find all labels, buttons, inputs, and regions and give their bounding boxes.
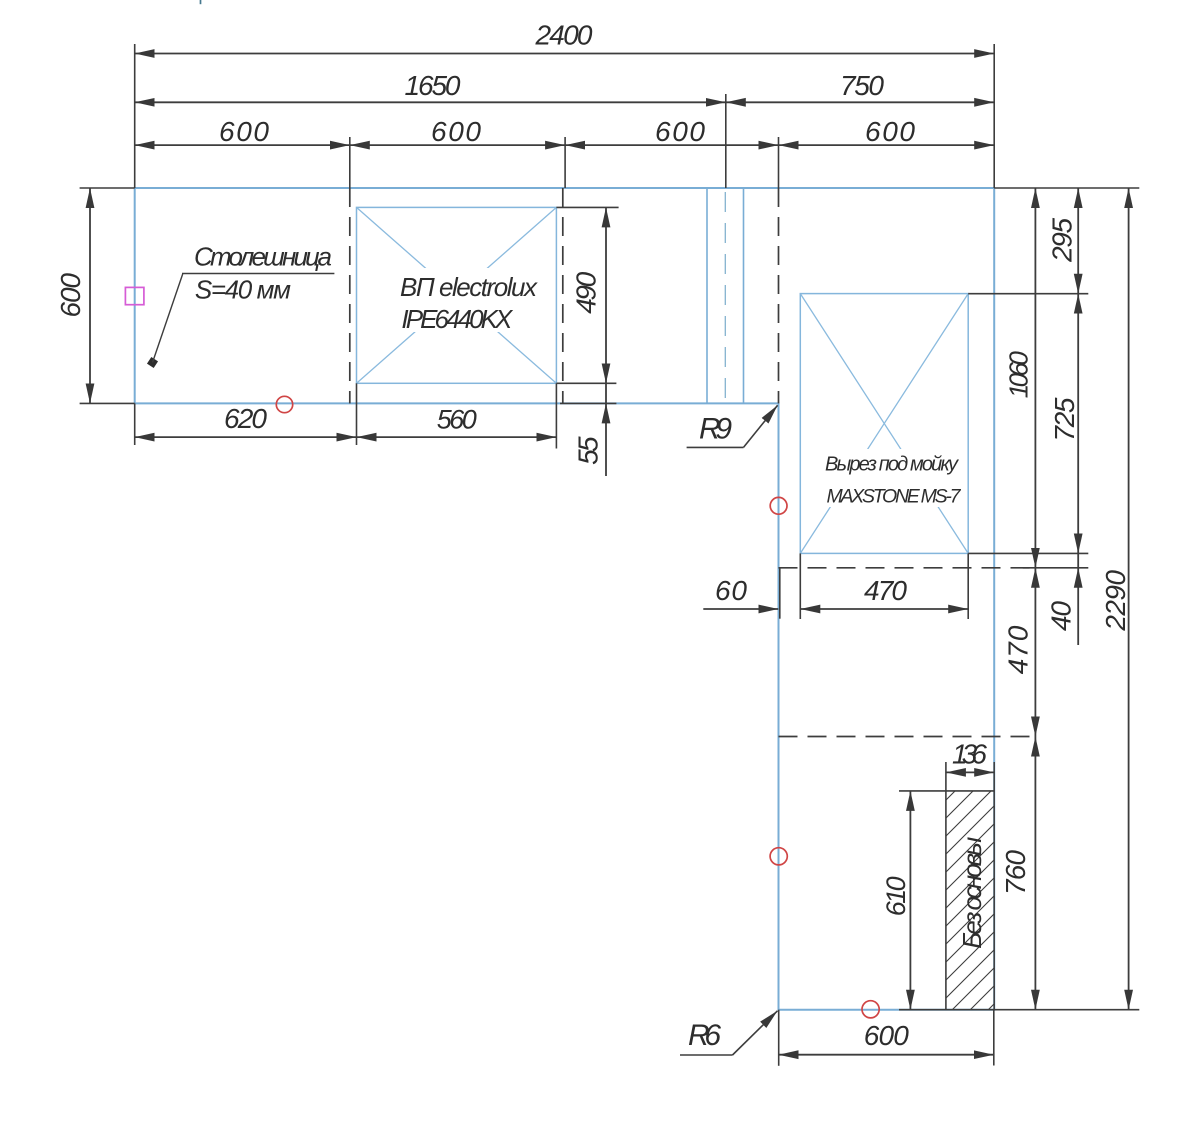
svg-text:MAXSTONE MS-7: MAXSTONE MS-7: [827, 485, 962, 507]
svg-text:55: 55: [572, 436, 603, 465]
svg-text:2400: 2400: [535, 20, 593, 51]
svg-text:725: 725: [1049, 397, 1080, 441]
svg-text:R6: R6: [688, 1019, 721, 1052]
svg-text:40: 40: [1046, 601, 1077, 631]
svg-text:470: 470: [864, 575, 907, 606]
svg-text:610: 610: [881, 876, 911, 916]
svg-text:ВП electrolux: ВП electrolux: [400, 272, 538, 302]
svg-text:620: 620: [224, 403, 267, 434]
svg-text:60: 60: [715, 575, 747, 606]
svg-text:IPE6440KX: IPE6440KX: [401, 304, 514, 334]
svg-text:R9: R9: [699, 413, 732, 446]
svg-text:600: 600: [655, 116, 705, 147]
svg-text:S=40 мм: S=40 мм: [195, 275, 291, 305]
svg-text:Столешница: Столешница: [194, 242, 332, 272]
svg-text:600: 600: [219, 116, 269, 147]
svg-text:600: 600: [865, 116, 915, 147]
svg-text:Без основы: Без основы: [957, 837, 987, 949]
svg-text:600: 600: [55, 273, 86, 318]
svg-text:2290: 2290: [1100, 570, 1131, 632]
svg-text:490: 490: [570, 271, 601, 313]
svg-text:600: 600: [431, 116, 481, 147]
svg-text:295: 295: [1046, 217, 1077, 262]
svg-text:1650: 1650: [405, 70, 461, 101]
svg-text:600: 600: [864, 1020, 909, 1051]
svg-text:136: 136: [952, 739, 987, 770]
svg-text:470: 470: [1003, 625, 1034, 674]
svg-text:1060: 1060: [1004, 351, 1034, 399]
svg-text:Вырез под мойку: Вырез под мойку: [825, 454, 959, 476]
svg-text:750: 750: [840, 70, 884, 101]
svg-text:560: 560: [437, 404, 477, 434]
svg-text:760: 760: [1000, 850, 1031, 895]
